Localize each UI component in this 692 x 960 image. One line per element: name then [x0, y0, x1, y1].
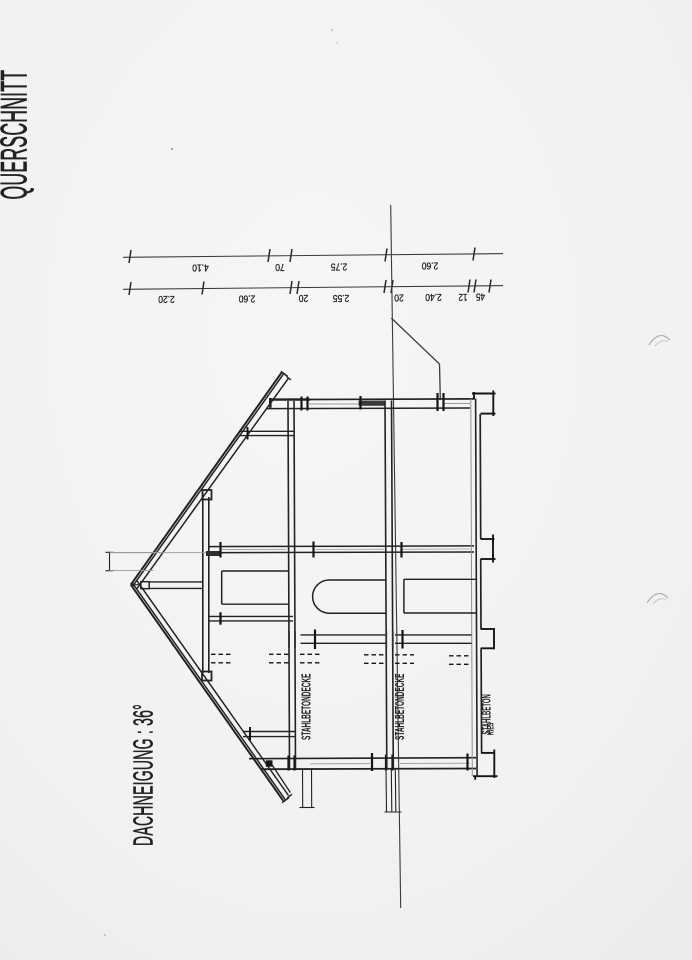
- svg-text:45: 45: [476, 291, 485, 302]
- svg-text:2.40: 2.40: [425, 291, 442, 303]
- svg-text:DACHNEIGUNG : 36°: DACHNEIGUNG : 36°: [127, 704, 159, 846]
- svg-text:20: 20: [299, 292, 308, 304]
- svg-text:2.60: 2.60: [422, 259, 439, 271]
- svg-text:STAHLBETONDECKE: STAHLBETONDECKE: [300, 673, 314, 740]
- svg-text:70: 70: [275, 261, 284, 273]
- svg-text:2.60: 2.60: [239, 292, 256, 304]
- svg-text:12: 12: [458, 292, 467, 303]
- svg-text:QUERSCHNITT: QUERSCHNITT: [0, 70, 35, 200]
- svg-text:2.75: 2.75: [331, 260, 348, 272]
- svg-text:STAHLBETONDECKE: STAHLBETONDECKE: [394, 673, 408, 740]
- svg-text:4.10: 4.10: [192, 261, 209, 273]
- svg-text:20: 20: [394, 291, 403, 303]
- svg-text:2.55: 2.55: [333, 292, 350, 304]
- svg-text:2.20: 2.20: [158, 293, 175, 305]
- svg-text:KIES: KIES: [485, 723, 496, 736]
